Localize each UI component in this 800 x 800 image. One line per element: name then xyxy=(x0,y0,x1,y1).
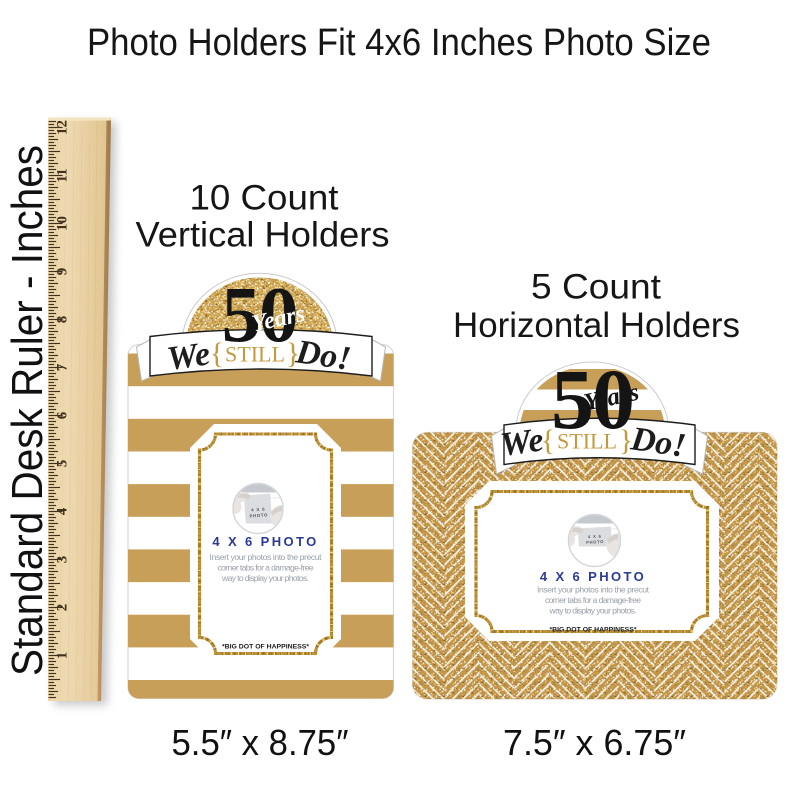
svg-text:10 Count: 10 Count xyxy=(190,178,339,218)
svg-text:5.5″ x 8.75″: 5.5″ x 8.75″ xyxy=(172,722,349,763)
svg-text:STILL: STILL xyxy=(557,429,617,454)
svg-text:Vertical Holders: Vertical Holders xyxy=(136,215,390,255)
svg-text:Do!: Do! xyxy=(628,420,688,464)
svg-text:7.5″ x 6.75″: 7.5″ x 6.75″ xyxy=(503,722,686,763)
svg-text:6: 6 xyxy=(55,411,71,419)
svg-text:4 X 6: 4 X 6 xyxy=(251,506,266,512)
svg-text:5 Count: 5 Count xyxy=(531,267,661,307)
svg-text:STILL: STILL xyxy=(225,342,285,367)
svg-text:Standard Desk Ruler - Inches: Standard Desk Ruler - Inches xyxy=(3,145,52,676)
svg-text:4: 4 xyxy=(55,507,71,515)
svg-text:4 X 6 PHOTO: 4 X 6 PHOTO xyxy=(212,534,318,549)
svg-text:9: 9 xyxy=(55,268,71,276)
svg-text:*BIG DOT OF HAPPINESS*: *BIG DOT OF HAPPINESS* xyxy=(222,645,310,651)
svg-text:Insert your photos into the pr: Insert your photos into the precut xyxy=(210,552,323,562)
svg-text:4 X 6 PHOTO: 4 X 6 PHOTO xyxy=(540,569,646,584)
svg-text:We: We xyxy=(165,335,213,378)
svg-text:{: { xyxy=(541,424,555,457)
svg-text:11: 11 xyxy=(55,168,71,182)
svg-text:Photo Holders Fit 4x6 Inches P: Photo Holders Fit 4x6 Inches Photo Size xyxy=(87,22,711,64)
svg-text:Insert your photos into the pr: Insert your photos into the precut xyxy=(537,585,650,595)
svg-text:Do!: Do! xyxy=(293,333,353,377)
svg-text:We: We xyxy=(498,421,546,464)
svg-text:2: 2 xyxy=(55,604,71,612)
svg-text:way to display your photos.: way to display your photos. xyxy=(549,606,637,616)
svg-text:corner tabs for a damage-free: corner tabs for a damage-free xyxy=(545,595,641,605)
svg-text:way to display your photos.: way to display your photos. xyxy=(221,573,309,583)
svg-text:1: 1 xyxy=(55,652,71,660)
svg-text:PHOTO: PHOTO xyxy=(586,539,604,545)
svg-text:{: { xyxy=(210,337,224,370)
svg-text:8: 8 xyxy=(55,316,71,324)
svg-text:corner tabs for a damage-free: corner tabs for a damage-free xyxy=(218,563,314,573)
svg-text:*BIG DOT OF HAPPINESS*: *BIG DOT OF HAPPINESS* xyxy=(550,628,638,634)
svg-text:7: 7 xyxy=(55,363,71,371)
svg-text:5: 5 xyxy=(55,460,71,468)
svg-text:12: 12 xyxy=(55,120,71,135)
svg-text:3: 3 xyxy=(55,556,71,564)
svg-text:Horizontal Holders: Horizontal Holders xyxy=(453,305,740,345)
svg-text:10: 10 xyxy=(55,216,71,231)
